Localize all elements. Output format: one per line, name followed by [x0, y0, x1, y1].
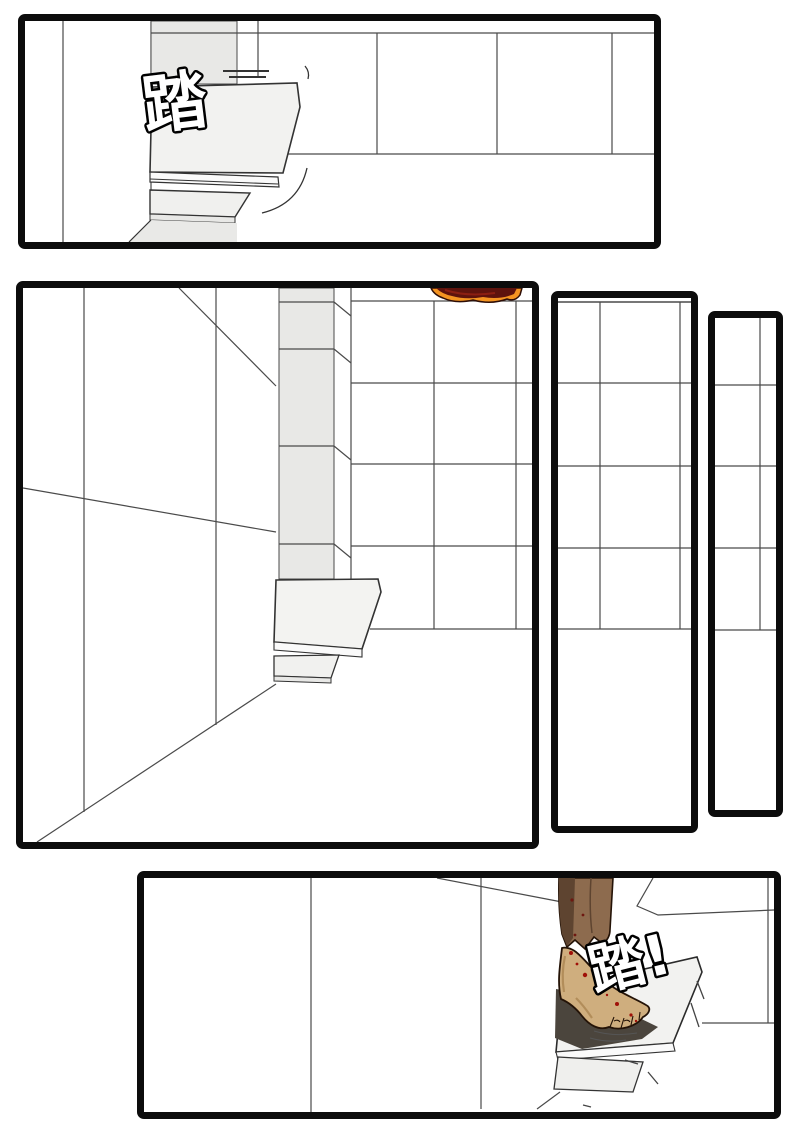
panel-2-art: [23, 288, 532, 842]
lower-step: [150, 190, 250, 217]
left-wall-lines: [23, 288, 276, 842]
lower-step: [554, 1057, 643, 1092]
manga-page: 踏: [0, 0, 800, 1132]
peeking-hair: [431, 288, 522, 302]
panel-1: 踏: [18, 14, 661, 249]
sfx-stomp-1: 踏: [139, 63, 213, 144]
tile-grid: [558, 302, 691, 629]
tile-grid: [715, 318, 776, 630]
pillar: [279, 288, 334, 579]
panel-5-art: 踏!: [144, 878, 774, 1112]
panel-3-art: [558, 298, 691, 826]
panel-4: [708, 311, 783, 817]
panel-3: [551, 291, 698, 833]
panel-5: 踏!: [137, 871, 781, 1119]
panel-1-art: 踏: [25, 21, 654, 242]
pillar-base: [129, 220, 237, 242]
lower-step: [274, 655, 339, 678]
panel-2: [16, 281, 539, 849]
panel-4-art: [715, 318, 776, 810]
step-top-face: [274, 579, 381, 649]
wall-lines: [311, 878, 562, 1112]
wall-lines: [63, 21, 151, 242]
